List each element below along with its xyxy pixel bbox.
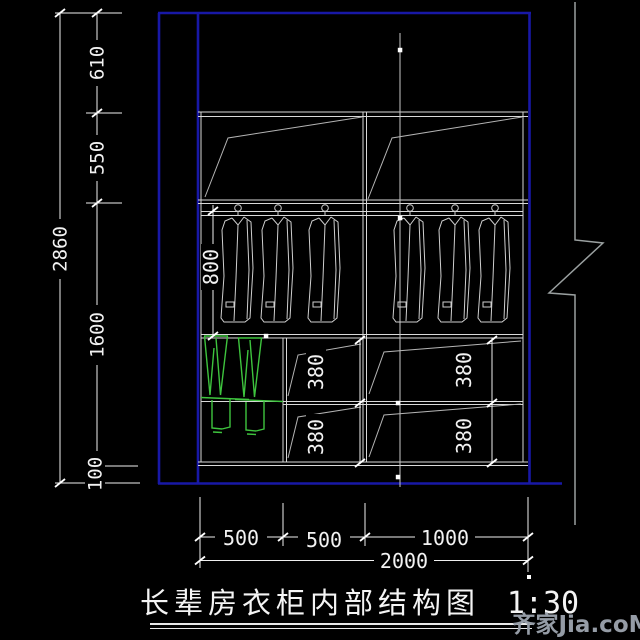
segment-610-label: 610 (87, 46, 109, 80)
bottom-500-label: 500 (306, 528, 342, 552)
dim-bottom-500a: 500 (215, 526, 267, 550)
hanging-800-label: 800 (199, 249, 223, 285)
watermark: 齐家Jia.coM (512, 611, 640, 638)
dim-drawer-right-380b: 380 (452, 413, 476, 459)
dim-hanging-800: 800 (199, 244, 223, 290)
dim-overall-height: 2860 (50, 219, 72, 279)
dim-segment-100: 100 (85, 451, 107, 497)
dim-segment-610: 610 (87, 40, 109, 86)
bottom-2000-label: 2000 (380, 549, 428, 573)
drawer-380-label: 380 (452, 418, 476, 454)
dim-segment-550: 550 (87, 135, 109, 181)
segment-1600-label: 1600 (87, 312, 109, 358)
dim-drawer-left-380b: 380 (304, 414, 328, 460)
drawer-380-label: 380 (304, 354, 328, 390)
segment-100-label: 100 (85, 457, 107, 491)
overall-height-label: 2860 (50, 226, 72, 272)
wardrobe-elevation-drawing: 2860 610 550 1600 100 800 380 380 380 38… (0, 0, 640, 640)
dim-drawer-right-380a: 380 (452, 347, 476, 393)
dim-bottom-1000: 1000 (415, 526, 475, 550)
bottom-1000-label: 1000 (421, 526, 469, 550)
drawing-title: 长辈房衣柜内部结构图 (140, 586, 480, 620)
drawer-380-label: 380 (304, 419, 328, 455)
cad-canvas: 2860 610 550 1600 100 800 380 380 380 38… (0, 0, 640, 640)
segment-550-label: 550 (87, 141, 109, 175)
bottom-500-label: 500 (223, 526, 259, 550)
drawer-380-label: 380 (452, 352, 476, 388)
dim-bottom-500b: 500 (298, 528, 350, 552)
dim-segment-1600: 1600 (87, 305, 109, 365)
dim-drawer-left-380a: 380 (304, 349, 328, 395)
dim-bottom-2000: 2000 (374, 549, 434, 573)
